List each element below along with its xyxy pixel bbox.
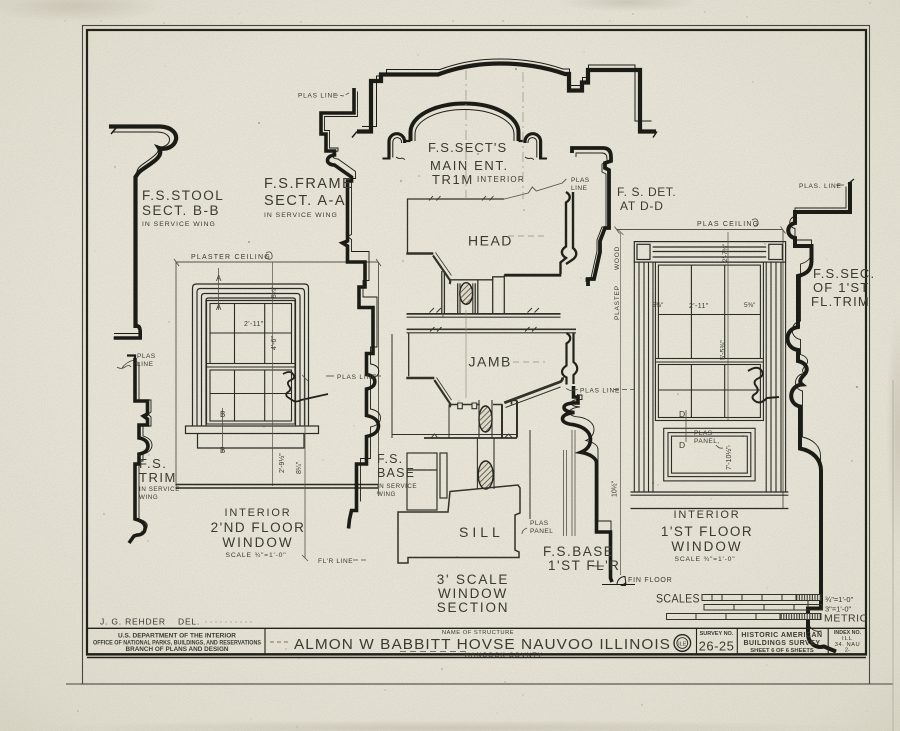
- svg-text:2'ND FLOOR: 2'ND FLOOR: [211, 520, 306, 535]
- svg-text:SECTION: SECTION: [437, 600, 510, 615]
- svg-text:SCALE ¾"=1'-0": SCALE ¾"=1'-0": [226, 552, 287, 559]
- svg-text:1'ST FL'R: 1'ST FL'R: [548, 558, 620, 573]
- svg-text:PLAS CEILING: PLAS CEILING: [697, 221, 759, 228]
- svg-text:5'-5⅜": 5'-5⅜": [720, 340, 727, 360]
- svg-text:METRIC: METRIC: [824, 613, 868, 625]
- svg-text:ALMON W BABBITT HOVSE NAUV: ALMON W BABBITT HOVSE NAUVOO ILLINOIS: [294, 637, 671, 653]
- svg-text:5⅜": 5⅜": [744, 302, 756, 309]
- svg-text:PLAS LINE: PLAS LINE: [580, 388, 620, 395]
- svg-text:BRANCH OF PLANS AND DESIGN: BRANCH OF PLANS AND DESIGN: [126, 646, 229, 653]
- svg-text:INTERIOR: INTERIOR: [477, 175, 525, 184]
- svg-text:PANEL,: PANEL,: [694, 438, 720, 445]
- svg-text:J. G. REHDER: J. G. REHDER: [100, 617, 166, 627]
- svg-text:F.S.: F.S.: [139, 456, 167, 471]
- svg-text:WINDOW: WINDOW: [222, 535, 293, 550]
- svg-text:SURVEY NO.: SURVEY NO.: [700, 631, 734, 637]
- svg-text:10½": 10½": [611, 480, 619, 497]
- svg-text:7'-10½": 7'-10½": [725, 446, 733, 470]
- svg-text:ILE: ILE: [678, 642, 687, 648]
- svg-text:F.S.SECT'S: F.S.SECT'S: [428, 140, 507, 155]
- svg-text:1'ST FLOOR: 1'ST FLOOR: [661, 524, 753, 539]
- svg-text:SILL: SILL: [459, 524, 504, 540]
- svg-text:8¼": 8¼": [296, 461, 303, 474]
- svg-text:WING: WING: [377, 491, 396, 498]
- svg-text:JAMB: JAMB: [469, 354, 512, 370]
- svg-text:WING: WING: [139, 494, 158, 501]
- svg-text:HISTORIC AMERICAN: HISTORIC AMERICAN: [741, 632, 822, 639]
- svg-text:F.S.: F.S.: [377, 452, 403, 466]
- svg-text:SHEET 6 OF 6 SHEETS: SHEET 6 OF 6 SHEETS: [750, 648, 814, 654]
- svg-text:3' SCALE: 3' SCALE: [437, 572, 510, 587]
- svg-text:B: B: [220, 410, 225, 419]
- svg-text:U.S. DEPARTMENT OF THE INTERIO: U.S. DEPARTMENT OF THE INTERIOR: [118, 633, 236, 640]
- svg-text:FL'R LINE: FL'R LINE: [318, 558, 353, 565]
- svg-text:B: B: [220, 446, 225, 455]
- svg-text:SECT. B-B: SECT. B-B: [142, 203, 220, 218]
- svg-text:2'-9½": 2'-9½": [278, 453, 286, 473]
- svg-text:FL.TRIM: FL.TRIM: [811, 294, 870, 309]
- svg-text:WINDOW: WINDOW: [438, 586, 508, 601]
- svg-text:F.S.FRAME: F.S.FRAME: [264, 176, 353, 192]
- svg-text:TR1M: TR1M: [432, 172, 474, 187]
- svg-text:OF 1'ST: OF 1'ST: [813, 280, 869, 295]
- svg-text:PLAS LINE: PLAS LINE: [337, 374, 377, 381]
- svg-text:4'-6": 4'-6": [271, 336, 278, 350]
- svg-text:A: A: [216, 274, 222, 283]
- svg-text:LINE: LINE: [571, 185, 588, 192]
- svg-text:A: A: [216, 303, 222, 312]
- svg-text:D: D: [679, 409, 685, 419]
- svg-text:PLAS LINE: PLAS LINE: [298, 93, 338, 100]
- svg-text:BUILDINGS SURVEY: BUILDINGS SURVEY: [743, 640, 820, 647]
- svg-text:MAIN ENT.: MAIN ENT.: [430, 158, 509, 173]
- svg-text:PLAS: PLAS: [571, 177, 590, 184]
- svg-text:PLASTEP: PLASTEP: [614, 285, 621, 320]
- svg-text:INTERIOR: INTERIOR: [225, 507, 292, 519]
- svg-text:SCALE ¾"=1'-0": SCALE ¾"=1'-0": [675, 556, 736, 563]
- svg-text:DEL.: DEL.: [178, 617, 200, 627]
- svg-text:WOOD: WOOD: [614, 246, 621, 270]
- svg-text:HEAD: HEAD: [468, 233, 513, 249]
- svg-text:F.S.STOOL: F.S.STOOL: [142, 188, 224, 203]
- svg-text:IN SERVICE: IN SERVICE: [377, 483, 417, 490]
- svg-text:PLAS: PLAS: [530, 520, 549, 527]
- svg-text:AT D-D: AT D-D: [620, 199, 664, 213]
- svg-text:¾"=1'-0": ¾"=1'-0": [825, 595, 854, 604]
- svg-text:WINDOW: WINDOW: [671, 539, 742, 554]
- svg-text:2'-11": 2'-11": [689, 303, 709, 310]
- svg-text:IN SERVICE: IN SERVICE: [139, 486, 180, 493]
- svg-text:LINE: LINE: [137, 361, 154, 368]
- svg-text:FIN FLOOR: FIN FLOOR: [628, 577, 673, 584]
- svg-text:IN SERVICE WING: IN SERVICE WING: [142, 221, 216, 228]
- svg-text:TRIM: TRIM: [139, 470, 177, 485]
- svg-text:IN SERVICE WING: IN SERVICE WING: [264, 212, 338, 219]
- svg-text:PLAS: PLAS: [694, 430, 713, 437]
- svg-text:5⅜": 5⅜": [652, 302, 664, 309]
- svg-text:F.S.BASE: F.S.BASE: [543, 544, 614, 559]
- svg-text:26-25: 26-25: [699, 639, 735, 654]
- svg-text:5¼": 5¼": [271, 286, 278, 298]
- svg-text:PLAS. LINE: PLAS. LINE: [799, 183, 842, 190]
- svg-text:SCALES: SCALES: [656, 592, 700, 606]
- svg-text:PLASTER CEILING: PLASTER CEILING: [191, 254, 271, 261]
- svg-text:PANEL: PANEL: [530, 528, 553, 535]
- svg-text:NAME OF STRUCTURE: NAME OF STRUCTURE: [442, 630, 514, 636]
- svg-text:F. S. DET.: F. S. DET.: [617, 185, 676, 199]
- svg-text:SECT. A-A: SECT. A-A: [264, 193, 346, 209]
- svg-text:F.S.SEC.: F.S.SEC.: [813, 266, 875, 281]
- svg-text:D: D: [679, 440, 685, 450]
- svg-text:PLAS: PLAS: [137, 353, 156, 360]
- svg-text:BASE: BASE: [377, 466, 415, 480]
- svg-text:2-: 2-: [845, 647, 850, 653]
- svg-text:2'-11": 2'-11": [244, 321, 264, 328]
- svg-text:HANCOCK COVNTY: HANCOCK COVNTY: [465, 652, 543, 659]
- svg-text:INTERIOR: INTERIOR: [674, 509, 741, 521]
